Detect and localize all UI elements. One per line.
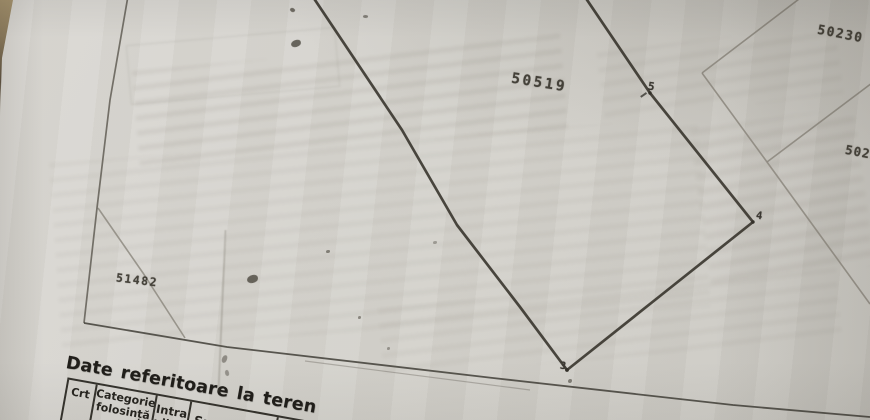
plan-frame-bottom-double xyxy=(305,361,530,390)
parcel-boundary-southeast xyxy=(567,222,753,370)
table-col-header-category: Categorie folosință xyxy=(87,384,156,420)
cadastral-plan-drawing xyxy=(0,0,870,420)
adjacent-parcel-line xyxy=(702,0,803,73)
vertex-label-5: 5 xyxy=(647,80,655,94)
cadastral-plan-photo: 50519 50230 5023 51482 5 4 3 Date referi… xyxy=(0,0,870,420)
parcel-boundary-northeast xyxy=(583,0,753,222)
parcel-boundary-west xyxy=(311,0,567,370)
